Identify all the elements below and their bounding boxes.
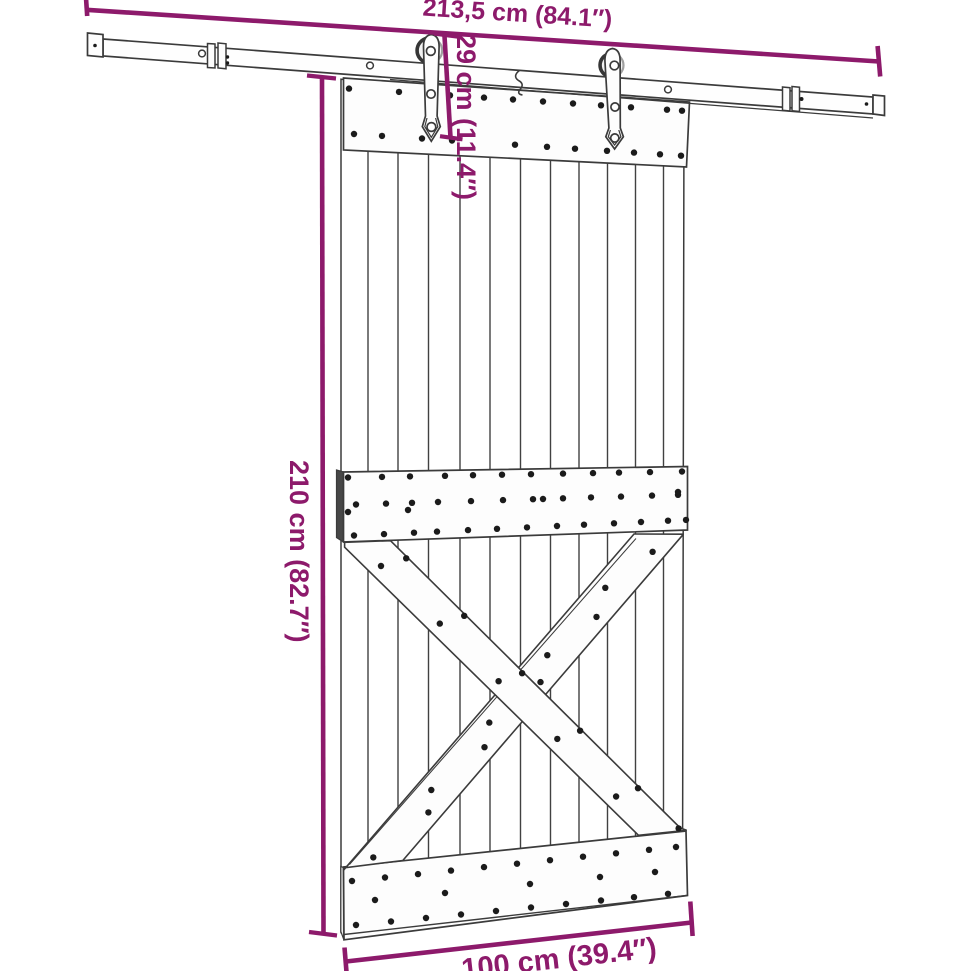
svg-text:29 cm (11.4″): 29 cm (11.4″)	[451, 34, 481, 200]
svg-text:213,5 cm (84.1″): 213,5 cm (84.1″)	[422, 0, 613, 33]
svg-text:210 cm (82.7″): 210 cm (82.7″)	[284, 460, 314, 643]
